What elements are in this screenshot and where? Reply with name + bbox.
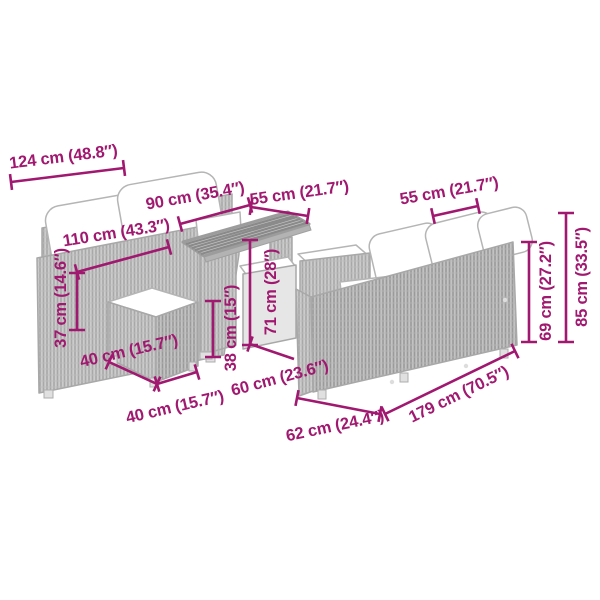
rivet — [390, 380, 394, 384]
rivet — [503, 298, 507, 302]
dimension-label: 85 cm (33.5″) — [573, 227, 591, 327]
dimension-sofa-left-total-width: 124 cm (48.8″) — [8, 141, 125, 189]
dimension-label: 40 cm (15.7″) — [124, 387, 225, 427]
dimension-line — [558, 213, 574, 342]
dimension-line — [521, 242, 537, 342]
dimension-sofa-right-total-height: 85 cm (33.5″) — [558, 213, 591, 342]
dimension-label: 69 cm (27.2″) — [537, 241, 555, 341]
right-sofa-leg — [318, 390, 326, 399]
right-sofa-leg — [400, 373, 408, 382]
dimension-sofa-right-back-height: 69 cm (27.2″) — [521, 241, 555, 342]
dimension-label: 37 cm (14.6″) — [52, 248, 70, 348]
dimension-label: 124 cm (48.8″) — [8, 141, 118, 172]
dimension-label: 55 cm (21.7″) — [249, 177, 350, 209]
dimension-label: 62 cm (24.4″) — [284, 407, 385, 445]
dimension-label: 55 cm (21.7″) — [398, 174, 499, 209]
dimension-label: 71 cm (28″) — [262, 249, 280, 335]
left-sofa-leg — [44, 390, 53, 398]
dimension-label: 38 cm (15″) — [222, 285, 240, 371]
dimension-label: 179 cm (70.5″) — [406, 363, 512, 427]
rivet — [464, 364, 468, 368]
dimension-diagram: 124 cm (48.8″)110 cm (43.3″)37 cm (14.6″… — [0, 0, 600, 600]
dimension-sofa-right-depth: 62 cm (24.4″) — [284, 390, 385, 445]
diagram-canvas: 124 cm (48.8″)110 cm (43.3″)37 cm (14.6″… — [0, 0, 600, 600]
